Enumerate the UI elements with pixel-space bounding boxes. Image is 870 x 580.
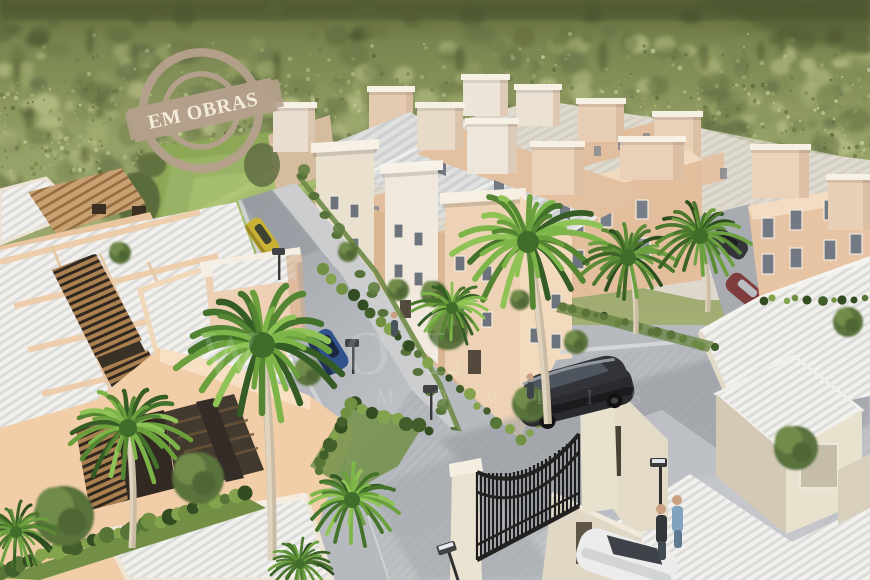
svg-text:W OL: W OL (200, 320, 500, 388)
svg-text:M O V E I S: M O V E I S (376, 385, 658, 409)
